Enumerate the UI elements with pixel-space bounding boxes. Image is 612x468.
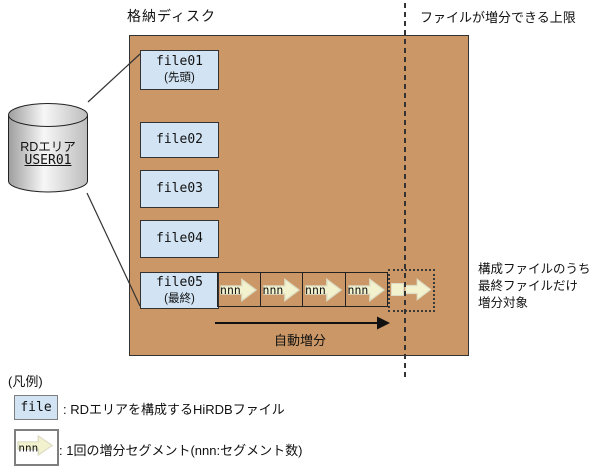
file-box-03: file03 (140, 170, 219, 208)
storage-disk-title: 格納ディスク (127, 6, 216, 26)
file-box-05: file05 (最終) (140, 272, 219, 309)
legend-file-description: : RDエリアを構成するHiRDBファイル (63, 399, 285, 418)
segment-count-label: nnn (261, 283, 286, 297)
increment-segment-row: nnn nnn nnn nnn (217, 272, 388, 307)
segment-count-label: nnn (218, 283, 243, 297)
legend-file-symbol: file (14, 395, 58, 420)
auto-extend-label: 自動増分 (240, 330, 360, 349)
file-name: file01 (156, 54, 203, 70)
file-box-02: file02 (140, 122, 219, 158)
last-file-annotation: 構成ファイルのうち 最終ファイルだけ 増分対象 (478, 261, 591, 312)
file-note: (最終) (164, 291, 195, 307)
legend-file-symbol-label: file (20, 400, 51, 415)
file-name: file05 (156, 275, 203, 291)
diagram-canvas: 格納ディスク ファイルが増分できる上限 RDエリア USER01 file01 … (0, 0, 612, 468)
file-name: file04 (156, 231, 203, 247)
increment-segment: nnn (217, 272, 261, 307)
increment-segment: nnn (302, 272, 346, 307)
legend-segment-description: : 1回の増分セグメント(nnn:セグメント数) (59, 440, 302, 459)
file-box-01: file01 (先頭) (140, 50, 219, 90)
legend-segment-symbol-label: nnn (16, 441, 41, 454)
legend-segment-symbol: nnn (14, 429, 59, 466)
file-note: (先頭) (164, 70, 195, 86)
file-name: file03 (156, 181, 203, 197)
legend-title: (凡例) (8, 371, 43, 390)
file-name: file02 (156, 132, 203, 148)
rdarea-name: USER01 (8, 153, 88, 168)
rdarea-cylinder: RDエリア USER01 (8, 103, 88, 193)
segment-count-label: nnn (346, 283, 371, 297)
pending-increment-outline (388, 269, 435, 312)
increment-segment: nnn (260, 272, 304, 307)
segment-count-label: nnn (303, 283, 328, 297)
pending-increment-arrow-icon (405, 276, 432, 303)
increment-segment: nnn (345, 272, 389, 307)
file-extend-limit-label: ファイルが増分できる上限 (420, 7, 576, 26)
pending-arrow-tail-segment (391, 283, 404, 296)
file-box-04: file04 (140, 220, 219, 258)
